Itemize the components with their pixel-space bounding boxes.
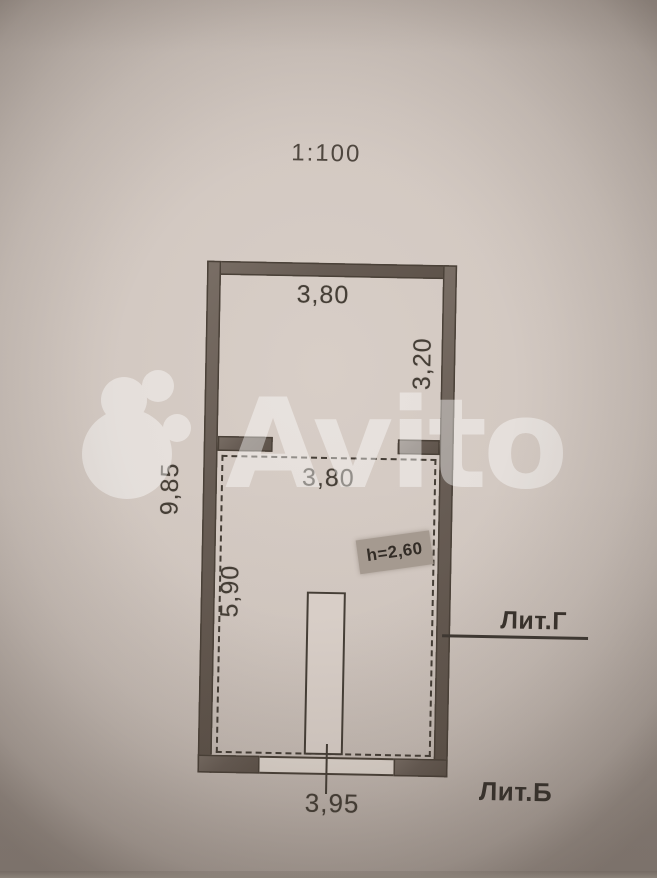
floor-plan-photo: 1:100 3,80 3,20 9,85 3,80 5,90 3,95 h=2,… [0, 0, 657, 878]
wall-bottom-right-segment [393, 758, 447, 777]
dim-bottom-width: 3,95 [305, 788, 360, 820]
dim-upper-room-width: 3,80 [296, 280, 349, 310]
dim-upper-room-depth: 3,20 [409, 334, 436, 394]
wall-top [207, 261, 457, 280]
label-lit-g: Лит.Г [500, 606, 567, 636]
wall-divider-right-stub [398, 439, 440, 455]
dim-lower-room-depth: 5,90 [216, 559, 243, 623]
photo-bottom-edge [0, 871, 657, 878]
label-lit-b: Лит.Б [479, 776, 553, 808]
wall-bottom-left-segment [197, 755, 259, 774]
scale-label: 1:100 [291, 139, 362, 168]
interior-rectangle [304, 592, 346, 756]
wall-divider-left-stub [218, 436, 273, 452]
floor-plan-drawing: 1:100 3,80 3,20 9,85 3,80 5,90 3,95 h=2,… [0, 0, 657, 878]
dim-lower-room-width: 3,80 [302, 463, 355, 493]
dim-total-depth: 9,85 [156, 457, 183, 521]
